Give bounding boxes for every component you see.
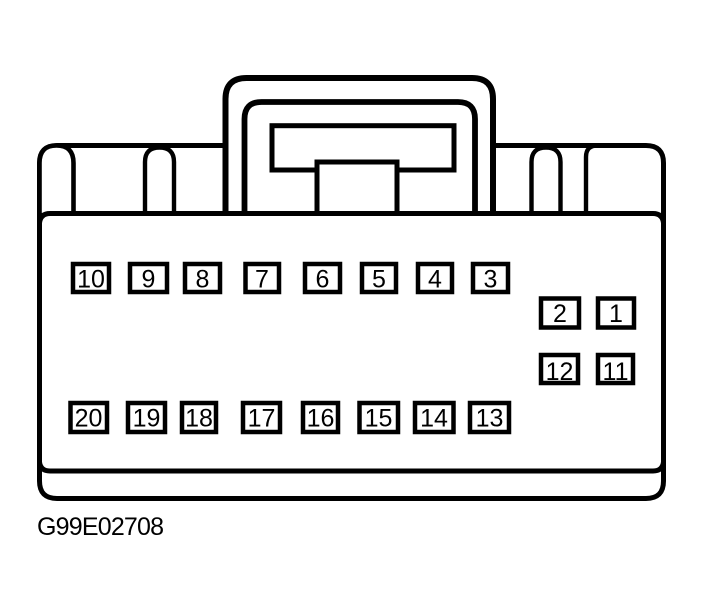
svg-text:19: 19 xyxy=(133,405,161,433)
svg-text:18: 18 xyxy=(185,405,213,433)
svg-text:10: 10 xyxy=(77,266,105,294)
svg-text:11: 11 xyxy=(603,358,629,386)
svg-text:G99E02708: G99E02708 xyxy=(37,513,163,541)
svg-text:2: 2 xyxy=(553,300,567,328)
svg-text:13: 13 xyxy=(476,405,504,433)
svg-text:8: 8 xyxy=(196,266,210,294)
svg-text:6: 6 xyxy=(316,266,330,294)
svg-text:12: 12 xyxy=(546,358,574,386)
svg-text:15: 15 xyxy=(365,405,393,433)
svg-text:7: 7 xyxy=(255,266,269,294)
svg-text:9: 9 xyxy=(142,266,156,294)
svg-text:4: 4 xyxy=(428,266,442,294)
svg-text:5: 5 xyxy=(372,266,386,294)
svg-text:1: 1 xyxy=(609,300,623,328)
svg-text:17: 17 xyxy=(248,405,276,433)
svg-text:3: 3 xyxy=(484,266,498,294)
svg-text:16: 16 xyxy=(307,405,335,433)
svg-text:20: 20 xyxy=(75,405,103,433)
svg-text:14: 14 xyxy=(420,405,448,433)
